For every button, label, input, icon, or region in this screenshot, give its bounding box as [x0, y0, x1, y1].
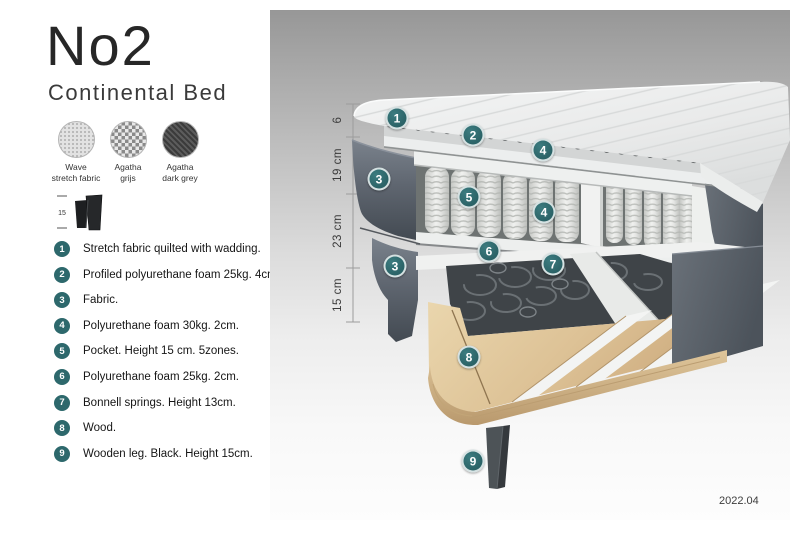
callout-badge: 8	[458, 346, 481, 369]
callout-badge: 7	[542, 253, 565, 276]
callout-badge: 2	[462, 124, 485, 147]
callout-badge: 6	[478, 240, 501, 263]
mattress-side-fabric-left	[352, 140, 416, 240]
dimension-label-mattress: 19 cm	[332, 148, 344, 182]
bed-leg	[486, 425, 510, 489]
dimension-label-legs: 15 cm	[332, 278, 344, 312]
callout-badge: 3	[368, 168, 391, 191]
callout-badge: 1	[386, 107, 409, 130]
callout-badge: 5	[458, 186, 481, 209]
version-label: 2022.04	[719, 495, 759, 507]
callout-badge: 4	[533, 201, 556, 224]
callout-badge: 4	[532, 139, 555, 162]
callout-badge: 9	[462, 450, 485, 473]
dimension-ruler	[346, 104, 360, 322]
bed-art	[340, 70, 800, 489]
callout-badge: 3	[384, 255, 407, 278]
product-sheet: { "product": { "title": "No2", "subtitle…	[0, 0, 800, 533]
dimension-label-base: 23 cm	[332, 214, 344, 248]
dimension-label-topper: 6	[332, 117, 344, 124]
